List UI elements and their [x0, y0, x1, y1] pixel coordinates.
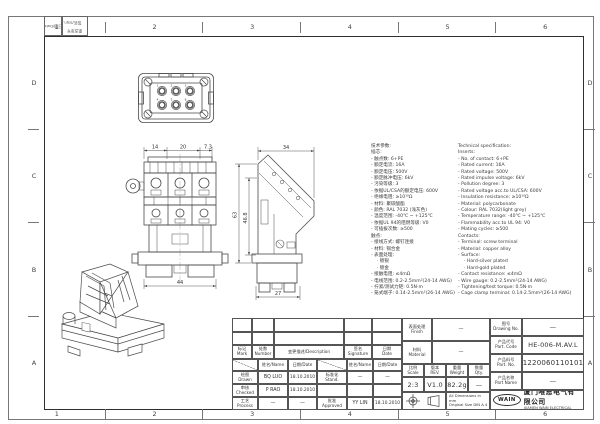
zone-label: 5 [399, 20, 497, 34]
process-date: — [288, 397, 317, 410]
side-dim-top-label: 34 [283, 145, 289, 151]
zone-label: 2 [106, 20, 204, 34]
revision-cell [344, 332, 372, 345]
company-cell: WAIN 厦门唯恩电气有限公司 XIAMEN WAIN ELECTRICAL C… [490, 390, 584, 410]
corner-block-text: 日期/Date [44, 24, 62, 28]
approved-label: 批准Approved [317, 397, 347, 410]
drawn-label: 绘图Drawn [232, 371, 258, 384]
projection-symbol-cell [402, 392, 446, 410]
revision-cell [274, 318, 344, 332]
finish-label: 表面处理Finish [402, 318, 432, 341]
zone-label: C [28, 130, 40, 224]
material-label: 材料Material [402, 341, 432, 364]
rev-label: 版本REV. [424, 364, 446, 377]
zone-label: 3 [203, 20, 301, 34]
name-subheader: 姓名/Name [258, 359, 288, 371]
drawing-no-value: — [522, 318, 584, 336]
drawing-sheet: 123456 123456 DCBA DCBA 日期/Date 更改单号 签名/… [0, 0, 600, 424]
stand-date: — [373, 371, 402, 384]
qty-label: 数量Qty. [468, 364, 490, 377]
spec-english: Technical specification:Inserts:- No. of… [458, 144, 564, 298]
revision-cell [252, 332, 274, 345]
part-name-value: — [522, 372, 584, 390]
svg-text:2: 2 [171, 84, 173, 88]
svg-text:3: 3 [185, 84, 187, 88]
corner-block-text: 更改单号 签名/Sign. [63, 20, 86, 33]
revision-cell [344, 318, 372, 332]
revision-cell [372, 332, 402, 345]
spec-line: - 电线范围: 0.2-2.5mm²(24-14 AWG) [371, 279, 457, 285]
spec-line: - Cage clamp terminal: 0.14-2.5mm²(26-14… [458, 291, 564, 297]
date-subheader: 日期/Date [288, 359, 317, 371]
approved-name: YY LIN [347, 397, 373, 410]
face-housing [139, 74, 214, 123]
contacts: 1 2 3 4 5 6 [157, 84, 195, 110]
spec-line: - 笼式端子: 0.14-2.5mm²(26-14 AWG) [371, 291, 457, 297]
face-view: 1 2 3 4 5 6 [137, 71, 215, 125]
first-angle-projection-icon [404, 393, 444, 409]
company-name-cn: 厦门唯恩电气有限公司 [524, 390, 581, 406]
corner-block-rev: 更改单号 签名/Sign. [62, 16, 88, 36]
zone-label: C [584, 130, 596, 224]
dimension-note: All Dimensions in mmOriginal Size DIN A … [446, 392, 490, 410]
empty-cell [347, 384, 373, 397]
iso-body [62, 264, 164, 356]
zone-label: 6 [496, 20, 594, 34]
side-dim-inner-height-label: 46.8 [243, 212, 249, 223]
revision-cell [252, 318, 274, 332]
svg-text:4: 4 [157, 98, 159, 102]
process-name: — [258, 397, 288, 410]
stand-name: — [347, 371, 373, 384]
description-header: 变更描述/Description [274, 345, 344, 359]
rev-value: V1.0 [424, 377, 446, 392]
date-header: 日期Date [372, 345, 402, 359]
name-subheader: 姓名/Name [347, 359, 373, 371]
zone-strip-left: DCBA [28, 36, 40, 410]
revision-cell [232, 318, 252, 332]
zone-label: 2 [106, 407, 204, 419]
zone-strip-right: DCBA [584, 36, 596, 410]
part-no-value: 1220060110101 [522, 354, 584, 372]
zone-strip-top: 123456 [8, 20, 594, 34]
empty-cell [373, 384, 402, 397]
wain-logo: WAIN [493, 394, 521, 406]
zone-label: B [584, 223, 596, 317]
process-label: 工艺Process [232, 397, 258, 410]
part-no-label: 产品料号Part. No. [490, 354, 522, 372]
empty-cell [317, 384, 347, 397]
svg-text:7.3: 7.3 [204, 145, 212, 151]
diagonal-cell [232, 359, 258, 371]
svg-text:20: 20 [180, 145, 186, 151]
number-header: 处数Number [252, 345, 274, 359]
stand-label: 标准化Stand. [317, 371, 347, 384]
part-name-label: 产品名称Part Name [490, 372, 522, 390]
front-body [126, 157, 228, 277]
diagonal-cell [317, 359, 347, 371]
zone-label: B [28, 223, 40, 317]
mark-header: 标记Mark [232, 345, 252, 359]
zone-label: D [584, 36, 596, 130]
weight-value: 82.2g [446, 377, 468, 392]
zone-label: A [584, 317, 596, 411]
part-code-value: HE-006-M.AV.L [522, 336, 584, 354]
zone-label: A [28, 317, 40, 411]
svg-text:1: 1 [157, 84, 159, 88]
scale-label: 比例Scale [402, 364, 424, 377]
svg-text:6: 6 [185, 98, 187, 102]
scale-value: 2:3 [402, 377, 424, 392]
svg-text:14: 14 [152, 145, 158, 151]
spec-chinese: 技术参数:插芯:- 触点数: 6+PE- 额定电流: 16A- 额定电压: 50… [371, 144, 457, 298]
front-dim-bottom-label: 44 [177, 280, 183, 286]
qty-value: — [468, 377, 490, 392]
title-block: 标记Mark 处数Number 变更描述/Description 签名Signa… [232, 318, 584, 410]
revision-cell [232, 332, 252, 345]
checked-name: P RAO [258, 384, 288, 397]
isometric-view [52, 260, 177, 358]
weight-label: 重量Weight [446, 364, 468, 377]
checked-label: 审核Checked [232, 384, 258, 397]
approved-date: 18.10.2010 [373, 397, 402, 410]
side-view: 34 63 46.8 27 [230, 142, 316, 302]
drawn-date: 18.10.2010 [288, 371, 317, 384]
zone-label: 1 [8, 407, 106, 419]
side-dim-bottom-label: 27 [275, 291, 281, 297]
svg-text:5: 5 [171, 98, 173, 102]
part-code-label: 产品代号Part. Code [490, 336, 522, 354]
side-profile [252, 155, 314, 292]
finish-value: — [432, 318, 490, 341]
material-value: — [432, 341, 490, 364]
corner-block-date: 日期/Date [44, 16, 62, 36]
signature-header: 签名Signature [344, 345, 372, 359]
company-name-en: XIAMEN WAIN ELECTRICAL CO.LTD [524, 406, 581, 410]
corner-screw-icon [144, 78, 208, 118]
revision-cell [274, 332, 344, 345]
drawing-no-label: 图号Drawing No. [490, 318, 522, 336]
date-subheader: 日期/Date [373, 359, 402, 371]
drawn-name: BQ LUO [258, 371, 288, 384]
zone-label: D [28, 36, 40, 130]
zone-label: 4 [301, 20, 399, 34]
revision-cell [372, 318, 402, 332]
checked-date: 18.10.2010 [288, 384, 317, 397]
side-dim-height-label: 63 [233, 212, 239, 218]
front-dim-labels: 14 20 7.3 [152, 145, 212, 151]
